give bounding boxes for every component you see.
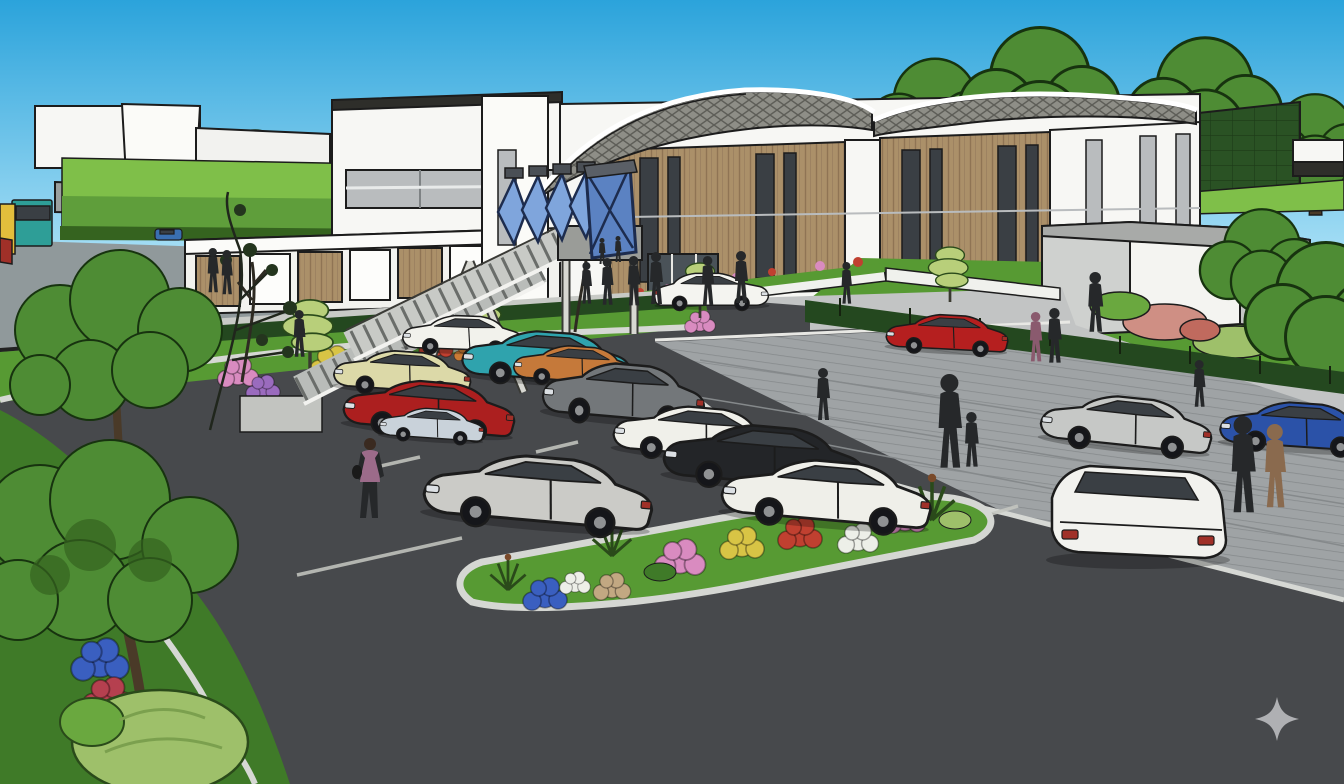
architectural-rendering	[0, 0, 1344, 784]
small-blue-car	[155, 229, 182, 240]
light-green-bush	[60, 690, 248, 784]
scene-canvas	[0, 0, 1344, 784]
